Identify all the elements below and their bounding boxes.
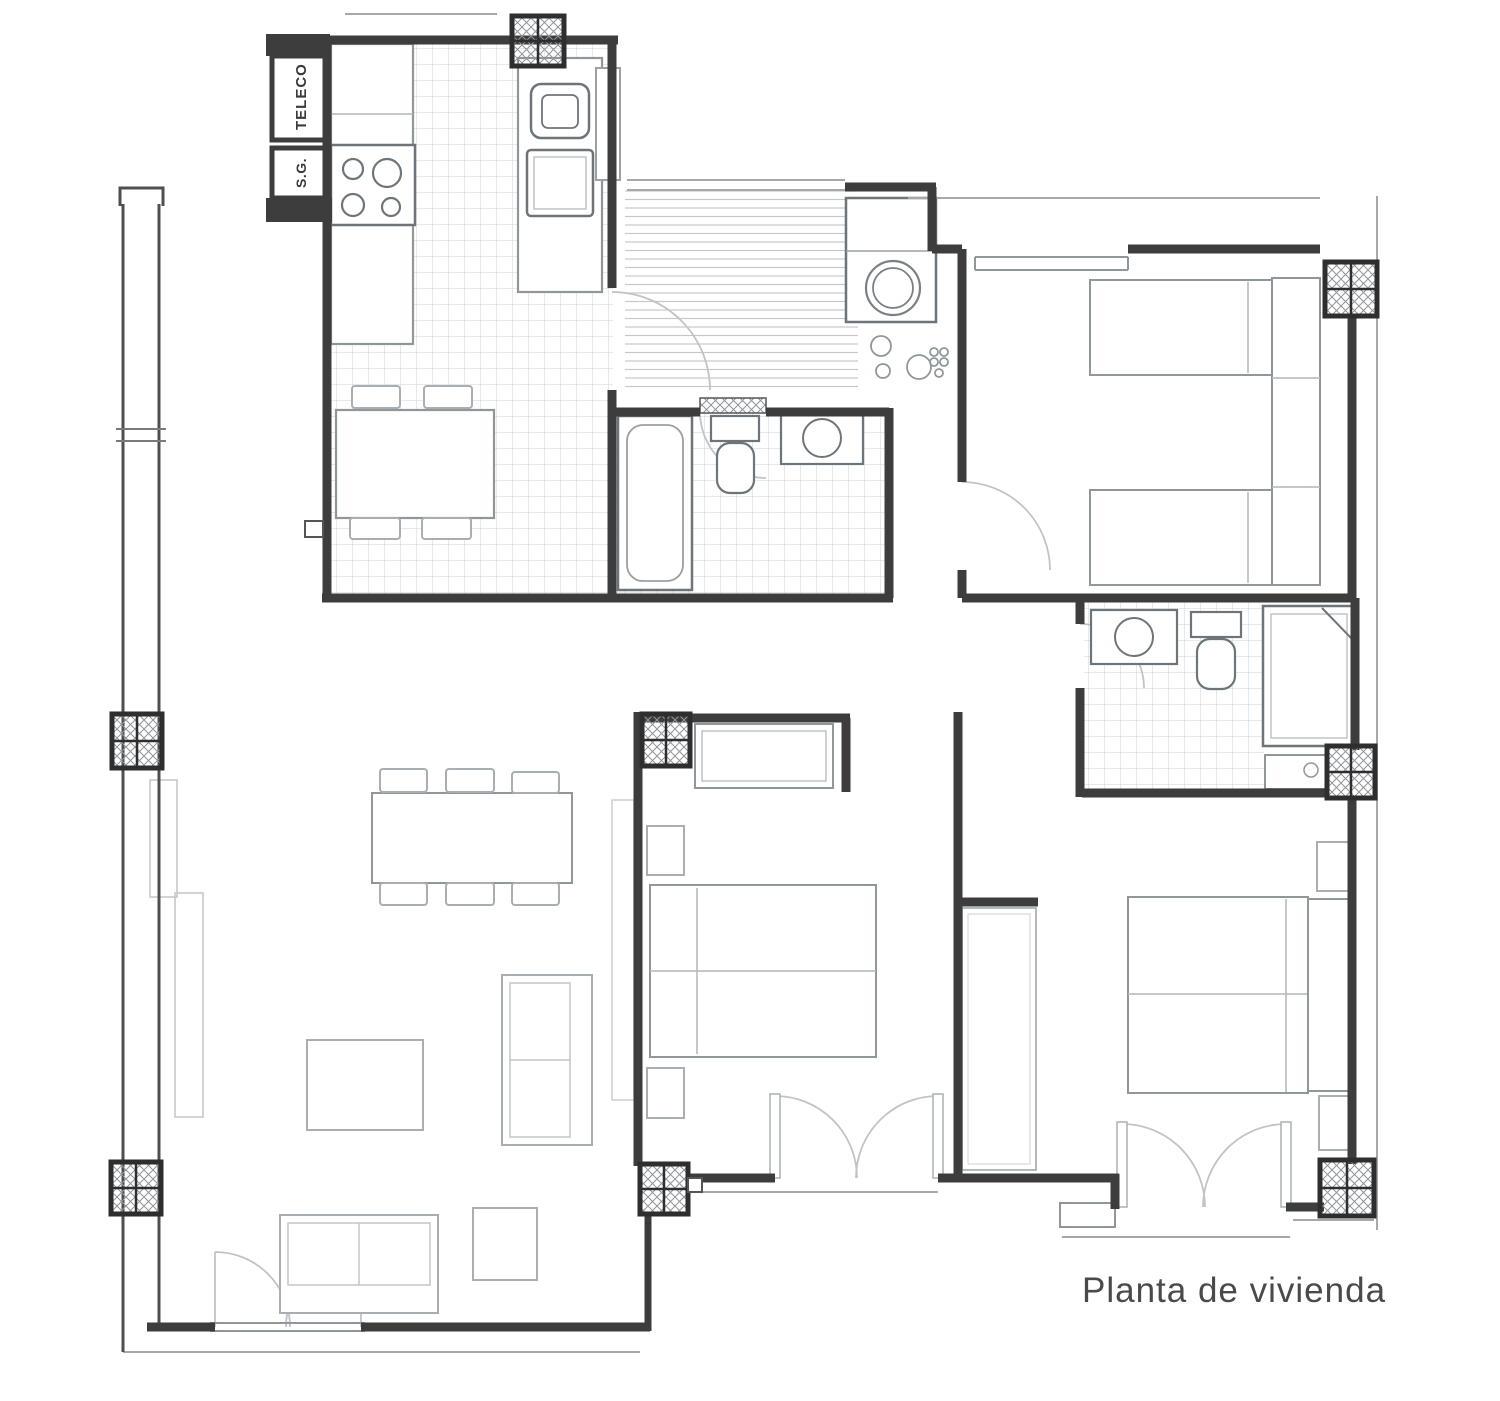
side-table xyxy=(473,1208,537,1280)
radiator xyxy=(175,893,203,1117)
toilet-tank xyxy=(711,416,759,441)
window-sill xyxy=(1060,1203,1115,1227)
single-bed xyxy=(1090,490,1272,585)
bathtub xyxy=(618,416,692,590)
bedroom3-door-arc-right xyxy=(1203,1124,1286,1207)
terrace-door-sill xyxy=(210,1323,365,1331)
nightstand xyxy=(647,826,684,875)
living-room xyxy=(150,769,634,1313)
headboard-strip xyxy=(1308,899,1354,1091)
kitchen-table xyxy=(336,410,494,518)
service-cabinets: TELECO S.G. xyxy=(272,56,325,198)
pillar-knob xyxy=(688,1178,702,1192)
teleco-cabinet-label: TELECO xyxy=(293,63,310,130)
floor-plan-drawing: TELECO S.G. Planta de vivienda xyxy=(0,0,1500,1401)
nightstand xyxy=(647,1068,684,1118)
dining-table xyxy=(372,793,572,883)
plan-caption: Planta de vivienda xyxy=(1082,1271,1386,1310)
wardrobe xyxy=(962,908,1036,1170)
bedroom2-door-arc-right xyxy=(856,1096,938,1178)
bathroom1-door-lintel xyxy=(700,398,766,413)
wall-corner xyxy=(266,34,330,56)
bedroom2-door-leaf xyxy=(770,1094,780,1178)
kitchen-sink xyxy=(531,84,589,138)
floor-plan-page: TELECO S.G. Planta de vivienda xyxy=(0,0,1500,1401)
single-bed xyxy=(1090,280,1272,375)
wall-corner xyxy=(266,198,332,222)
washing-machine xyxy=(866,261,920,315)
coffee-table xyxy=(307,1040,423,1130)
wardrobe xyxy=(695,724,833,788)
bedroom2-door-leaf xyxy=(933,1094,943,1178)
hallway-wood-floor xyxy=(625,183,858,390)
boiler-fittings xyxy=(871,336,948,379)
sg-cabinet-label: S.G. xyxy=(293,158,309,188)
terrace-wall-cap xyxy=(120,188,163,206)
utility-corner-wall xyxy=(932,187,962,251)
radiator xyxy=(150,780,177,897)
bedroom2-door-arc-left xyxy=(775,1096,857,1178)
bedroom3-door-leaf xyxy=(1281,1122,1291,1207)
toilet-bowl xyxy=(717,443,754,493)
shelf-strip xyxy=(612,800,634,1100)
double-bed xyxy=(1128,897,1308,1093)
bedroom-1 xyxy=(1090,278,1320,585)
toilet-bowl xyxy=(1197,639,1235,689)
terrace-door-arc-left xyxy=(215,1252,290,1327)
bedroom1-door-arc xyxy=(962,482,1050,570)
bedroom1-window xyxy=(975,257,1128,270)
headboard-strip xyxy=(1272,278,1320,585)
stove xyxy=(331,145,415,225)
bedroom3-door-arc-left xyxy=(1122,1124,1205,1207)
wall-niche xyxy=(305,521,323,537)
dishwasher xyxy=(527,150,593,216)
toilet-tank xyxy=(1191,612,1241,637)
